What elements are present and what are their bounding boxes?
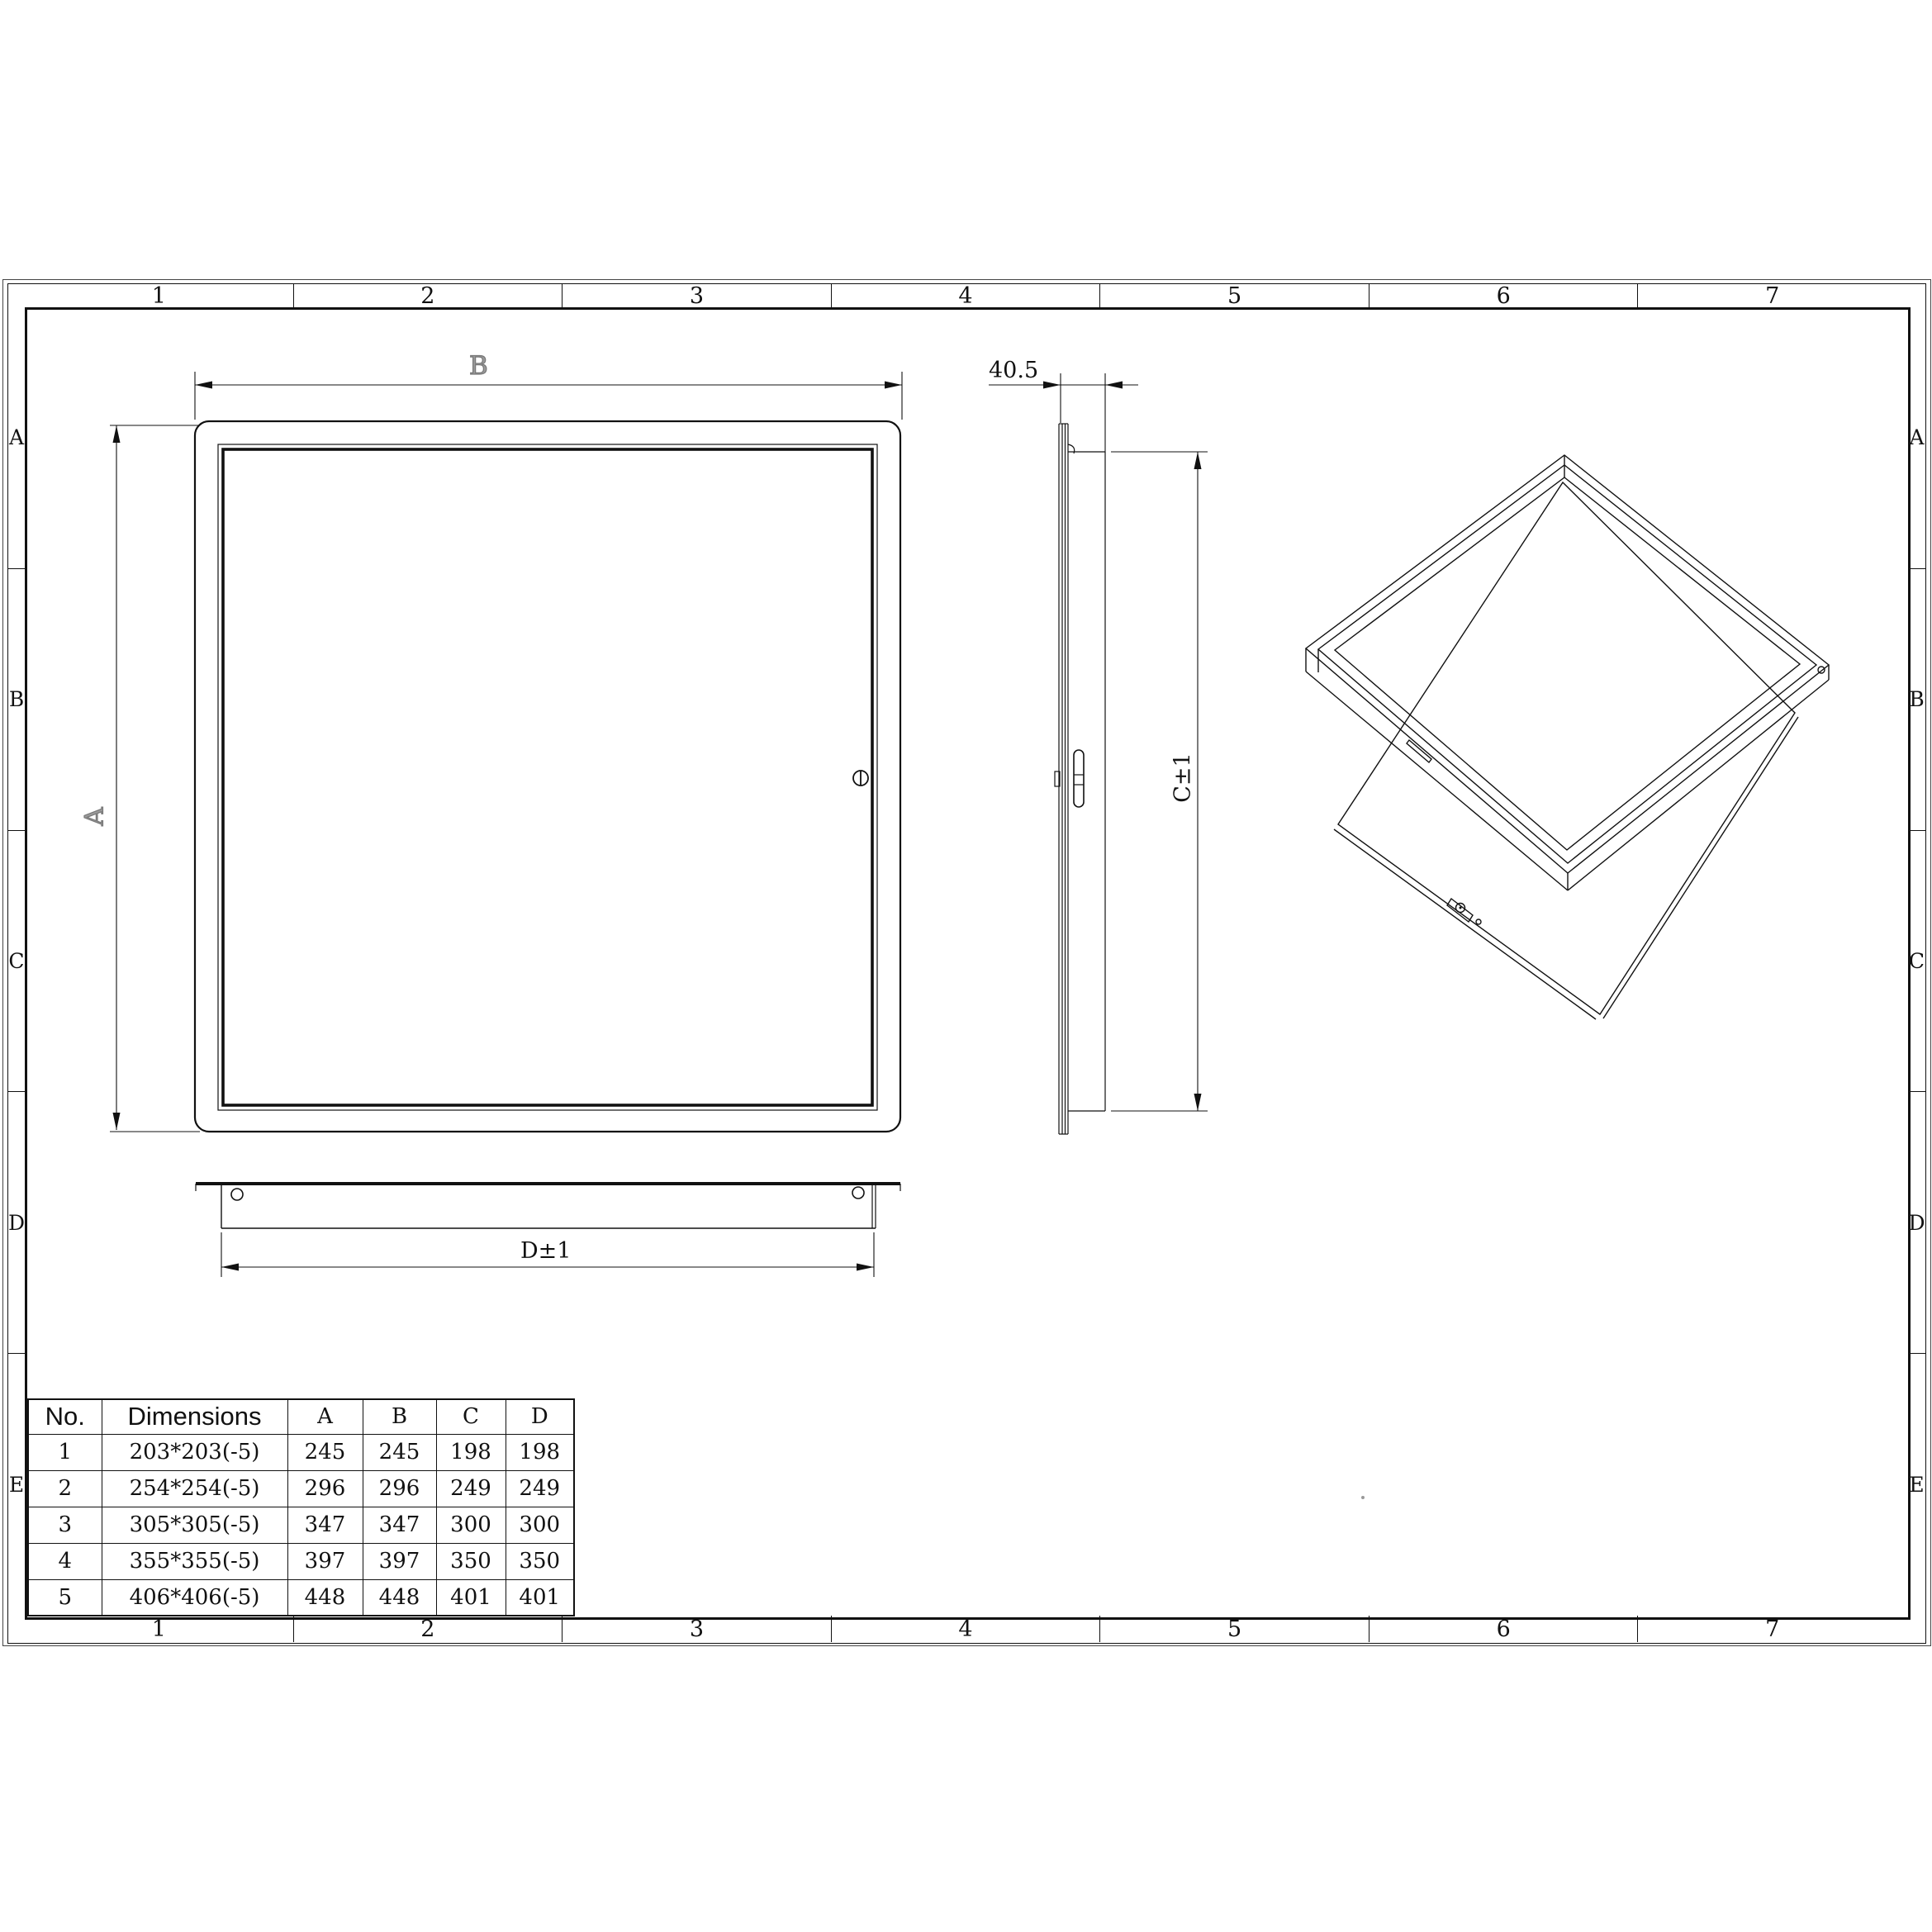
front-view-door <box>223 449 872 1105</box>
front-view <box>110 372 902 1132</box>
dim-label-C: C±1 <box>1172 752 1194 802</box>
cell: 300 <box>506 1507 574 1543</box>
dim-label-D: D±1 <box>520 1240 571 1262</box>
cell: 305*305(-5) <box>102 1507 287 1543</box>
table-row: 4 355*355(-5) 397 397 350 350 <box>28 1543 574 1579</box>
table-row: 5 406*406(-5) 448 448 401 401 <box>28 1579 574 1616</box>
cell: 347 <box>287 1507 363 1543</box>
table-row: 1 203*203(-5) 245 245 198 198 <box>28 1434 574 1470</box>
col-header-c: C <box>436 1399 506 1434</box>
cell: 355*355(-5) <box>102 1543 287 1579</box>
cell: 350 <box>506 1543 574 1579</box>
cell: 249 <box>436 1470 506 1507</box>
cell: 401 <box>506 1579 574 1616</box>
cell: 448 <box>287 1579 363 1616</box>
cell: 254*254(-5) <box>102 1470 287 1507</box>
iso-door-latch-plate <box>1447 899 1473 922</box>
drawing-sheet: 1 2 3 4 5 6 7 1 2 3 4 5 6 7 A B C D E A … <box>0 0 1932 1932</box>
dimensions-table: No. Dimensions A B C D 1 203*203(-5) 245… <box>27 1398 575 1616</box>
table-row: 3 305*305(-5) 347 347 300 300 <box>28 1507 574 1543</box>
dim-label-A: A <box>83 807 108 825</box>
table-header-row: No. Dimensions A B C D <box>28 1399 574 1434</box>
cell: 203*203(-5) <box>102 1434 287 1470</box>
cell: 1 <box>28 1434 102 1470</box>
iso-door-latch-screw <box>1476 919 1481 924</box>
iso-frame-opening <box>1335 477 1800 850</box>
cell: 245 <box>287 1434 363 1470</box>
cell: 249 <box>506 1470 574 1507</box>
cell: 406*406(-5) <box>102 1579 287 1616</box>
front-view-opening <box>218 444 877 1110</box>
cell: 3 <box>28 1507 102 1543</box>
speck-artifact <box>1361 1496 1365 1499</box>
isometric-view <box>1306 455 1829 1019</box>
iso-frame-screw <box>1818 667 1825 673</box>
cell: 397 <box>287 1543 363 1579</box>
table-row: 2 254*254(-5) 296 296 249 249 <box>28 1470 574 1507</box>
bottom-view-hole-right <box>852 1187 864 1199</box>
iso-door <box>1338 482 1795 1014</box>
cell: 350 <box>436 1543 506 1579</box>
col-header-a: A <box>287 1399 363 1434</box>
cell: 300 <box>436 1507 506 1543</box>
cell: 296 <box>287 1470 363 1507</box>
cell: 448 <box>363 1579 436 1616</box>
cell: 401 <box>436 1579 506 1616</box>
col-header-no: No. <box>28 1399 102 1434</box>
dim-label-B: B <box>469 354 488 379</box>
cell: 5 <box>28 1579 102 1616</box>
cell: 347 <box>363 1507 436 1543</box>
cell: 198 <box>506 1434 574 1470</box>
cell: 245 <box>363 1434 436 1470</box>
cell: 2 <box>28 1470 102 1507</box>
cell: 4 <box>28 1543 102 1579</box>
cell: 198 <box>436 1434 506 1470</box>
col-header-dimensions: Dimensions <box>102 1399 287 1434</box>
cell: 397 <box>363 1543 436 1579</box>
col-header-b: B <box>363 1399 436 1434</box>
dim-label-40-5: 40.5 <box>989 359 1038 382</box>
cell: 296 <box>363 1470 436 1507</box>
iso-frame-outer <box>1306 455 1829 873</box>
drawing-linework <box>0 0 1932 1932</box>
col-header-d: D <box>506 1399 574 1434</box>
front-view-frame <box>195 421 900 1132</box>
bottom-view-hole-left <box>231 1189 243 1200</box>
side-view-latch-lever <box>1074 750 1084 807</box>
